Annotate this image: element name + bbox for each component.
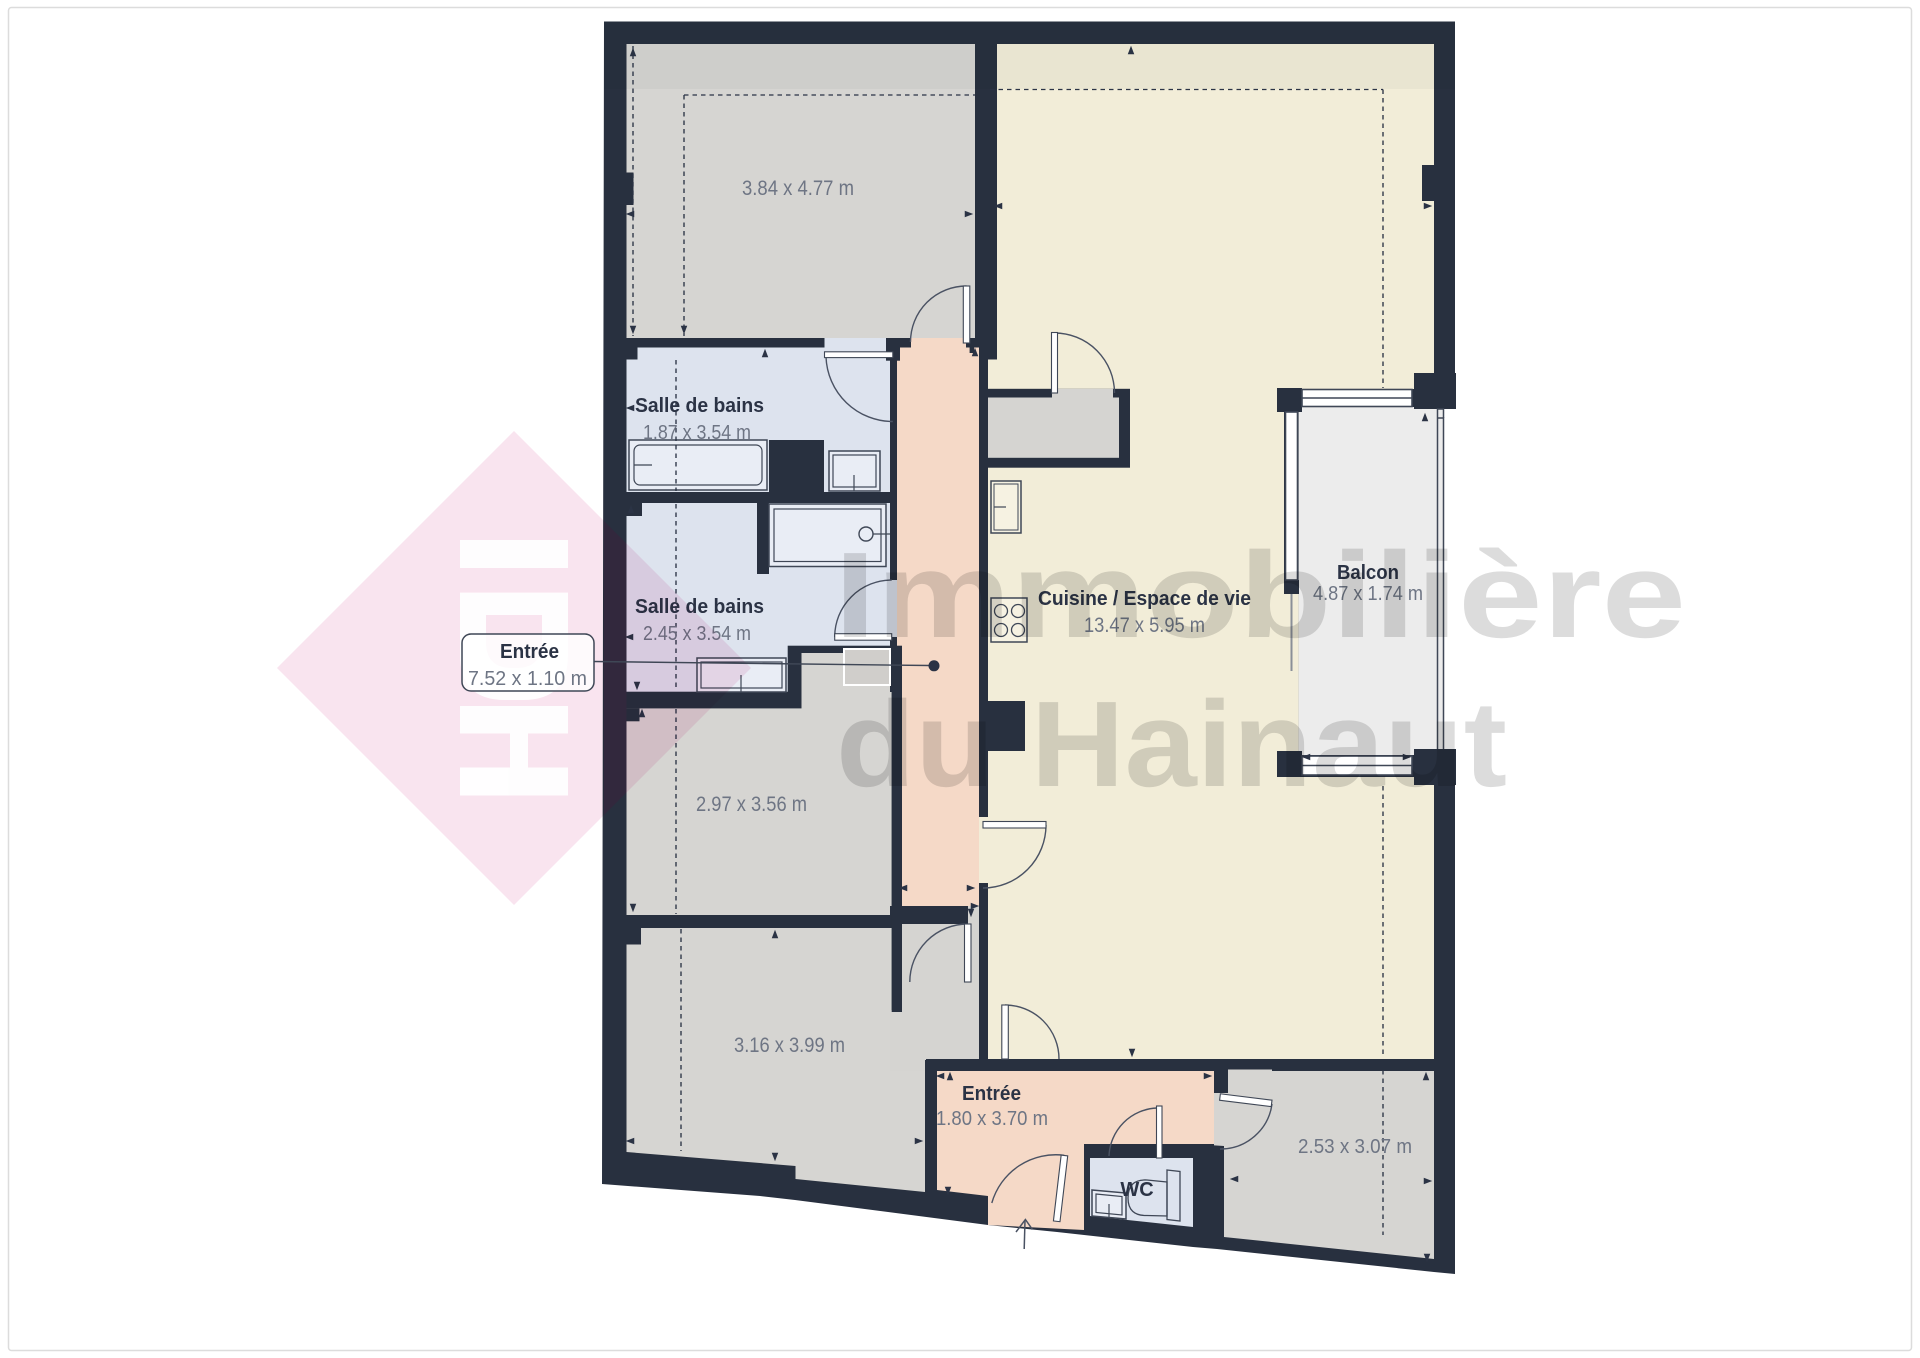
svg-text:1.87 x 3.54 m: 1.87 x 3.54 m (643, 422, 751, 444)
svg-text:Immobilière: Immobilière (834, 527, 1686, 663)
svg-text:2.53 x 3.07 m: 2.53 x 3.07 m (1298, 1136, 1412, 1158)
svg-text:1.80 x 3.70 m: 1.80 x 3.70 m (936, 1108, 1048, 1130)
svg-text:7.52 x 1.10 m: 7.52 x 1.10 m (468, 668, 587, 690)
svg-text:WC: WC (1120, 1179, 1153, 1201)
svg-text:2.97 x 3.56 m: 2.97 x 3.56 m (696, 793, 807, 816)
svg-text:3.16 x 3.99 m: 3.16 x 3.99 m (734, 1034, 845, 1057)
svg-text:Entrée: Entrée (500, 641, 559, 663)
svg-text:3.84 x 4.77 m: 3.84 x 4.77 m (742, 177, 854, 200)
svg-text:Entrée: Entrée (962, 1083, 1021, 1105)
svg-text:Salle de bains: Salle de bains (635, 395, 764, 417)
svg-text:du Hainaut: du Hainaut (836, 676, 1507, 812)
